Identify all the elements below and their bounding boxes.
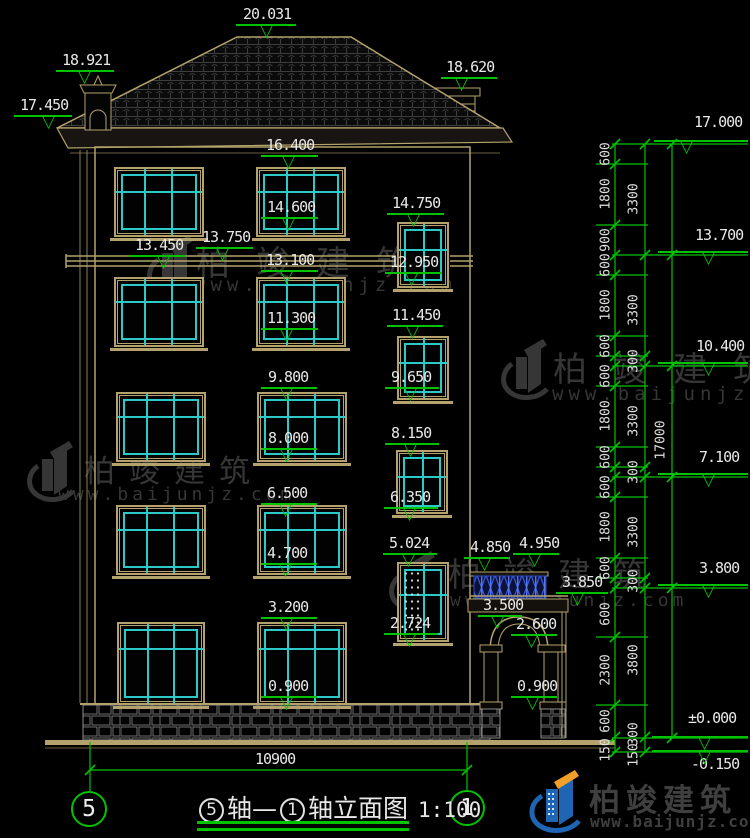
chain-dim-label: 3300	[628, 516, 641, 547]
elevation-triangle-icon: ▽	[280, 386, 293, 403]
level-triangle-icon: ▽	[680, 139, 693, 156]
chain-dim-label: 300	[628, 349, 641, 372]
window-mullion	[146, 394, 148, 460]
chain-dim-label: 17000	[655, 420, 668, 459]
window-transom	[259, 529, 345, 531]
window	[116, 505, 206, 575]
title-axis-a: 5	[199, 798, 224, 823]
chain-dim-label: 1800	[600, 289, 613, 320]
window-sill	[393, 289, 453, 292]
elevation-triangle-icon: ▽	[571, 591, 584, 608]
chain-dim-label: 600	[600, 709, 613, 732]
chain-dim-label: 600	[600, 253, 613, 276]
chain-dim-label: 600	[600, 475, 613, 498]
window-transom	[116, 191, 202, 193]
elevation-triangle-icon: ▽	[282, 154, 295, 171]
elevation-triangle-icon: ▽	[403, 506, 416, 523]
chain-dim-label: 3300	[628, 183, 641, 214]
elevation-triangle-icon: ▽	[404, 386, 417, 403]
elevation-drawing-canvas: 柏竣建筑www.baijunjz.com柏竣建筑www.baijunjz.com…	[0, 0, 750, 838]
level-label: 10.400	[696, 338, 744, 355]
elevation-triangle-icon: ▽	[280, 695, 293, 712]
chain-dim-label: 900	[600, 228, 613, 251]
elevation-triangle-icon: ▽	[478, 556, 491, 573]
elevation-triangle-icon: ▽	[280, 447, 293, 464]
window-sill	[392, 515, 452, 518]
window-sill	[393, 401, 453, 404]
level-label: 17.000	[694, 114, 742, 131]
window-mullion	[144, 169, 146, 235]
elevation-triangle-icon: ▽	[280, 327, 293, 344]
chain-dim-label: 600	[600, 334, 613, 357]
window-glass	[123, 399, 199, 455]
elevation-triangle-icon: ▽	[526, 695, 539, 712]
chain-dim-label: 3300	[628, 405, 641, 436]
level-triangle-icon: ▽	[702, 250, 715, 267]
chain-dim-label: 300	[628, 722, 641, 745]
window	[114, 277, 204, 347]
window-glass	[124, 629, 198, 698]
title-mid: 轴—	[227, 794, 277, 823]
elevation-triangle-icon: ▽	[280, 269, 293, 286]
window-sill	[113, 706, 209, 709]
window-sill	[112, 576, 210, 579]
window-sill	[112, 463, 210, 466]
window-mullion	[144, 279, 146, 345]
chain-dim-label: 600	[600, 602, 613, 625]
elevation-marker-line	[441, 77, 497, 79]
chain-dim-label: 1800	[600, 178, 613, 209]
chain-dim-label: 600	[600, 364, 613, 387]
window-transom	[258, 191, 344, 193]
elevation-label: 18.620	[446, 59, 494, 76]
window-transom	[118, 529, 204, 531]
window-transom	[119, 648, 203, 650]
drawing-title: 5轴—1轴立面图1:100	[196, 789, 481, 825]
title-axis-b: 1	[280, 798, 305, 823]
window-mullion	[173, 507, 175, 573]
elevation-triangle-icon: ▽	[280, 616, 293, 633]
level-label: 3.800	[699, 560, 739, 577]
level-marker-line	[654, 140, 748, 142]
window-sill	[393, 643, 453, 646]
chain-dim-label: 2300	[600, 654, 613, 685]
brand-url: www.baijunjz.com	[590, 812, 750, 831]
window-sill	[252, 348, 350, 351]
elevation-triangle-icon: ▽	[405, 271, 418, 288]
elevation-triangle-icon: ▽	[282, 216, 295, 233]
elevation-triangle-icon: ▽	[157, 254, 170, 271]
window-mullion	[173, 394, 175, 460]
window-sill	[253, 706, 351, 709]
window-mullion	[173, 624, 175, 703]
elevation-triangle-icon: ▽	[279, 562, 292, 579]
overall-dimension: 10900	[255, 751, 295, 768]
window-transom	[258, 301, 344, 303]
chain-dim-label: 600	[600, 445, 613, 468]
elevation-triangle-icon: ▽	[260, 23, 273, 40]
window-glass	[121, 174, 197, 230]
chain-dim-label: 300	[628, 460, 641, 483]
chain-dim-label: 150	[600, 738, 613, 761]
window-transom	[118, 416, 204, 418]
chain-dim-label: 300	[628, 569, 641, 592]
elevation-triangle-icon: ▽	[406, 324, 419, 341]
level-triangle-icon: ▽	[702, 583, 715, 600]
window-glass	[123, 512, 199, 568]
window-sill	[253, 463, 351, 466]
elevation-triangle-icon: ▽	[407, 212, 420, 229]
elevation-triangle-icon: ▽	[78, 69, 91, 86]
drawing-scale: 1:100	[418, 798, 481, 822]
chain-dim-label: 1800	[600, 511, 613, 542]
window-transom	[116, 301, 202, 303]
level-label: ±0.000	[688, 710, 736, 727]
window-mullion	[171, 279, 173, 345]
title-suffix: 轴立面图	[308, 794, 408, 823]
elevation-triangle-icon: ▽	[528, 552, 541, 569]
window-mullion	[146, 507, 148, 573]
window	[117, 622, 205, 705]
chain-dim-label: 150	[628, 743, 641, 766]
title-underline-1	[197, 821, 409, 824]
chain-dim-label: 1800	[600, 400, 613, 431]
brand-logo-icon	[527, 768, 587, 836]
elevation-triangle-icon: ▽	[42, 114, 55, 131]
window	[116, 392, 206, 462]
elevation-triangle-icon: ▽	[491, 614, 504, 631]
chain-dim-label: 600	[600, 556, 613, 579]
level-label: 13.700	[695, 227, 743, 244]
level-triangle-icon: ▽	[702, 361, 715, 378]
window-mullion	[171, 169, 173, 235]
level-triangle-icon: ▽	[698, 749, 711, 766]
elevation-triangle-icon: ▽	[403, 632, 416, 649]
window-sill	[253, 576, 351, 579]
chain-dim-label: 3300	[628, 294, 641, 325]
elevation-triangle-icon: ▽	[455, 76, 468, 93]
window-glass	[121, 284, 197, 340]
elevation-triangle-icon: ▽	[525, 633, 538, 650]
window-sill	[252, 238, 350, 241]
elevation-triangle-icon: ▽	[402, 552, 415, 569]
chain-dim-label: 600	[600, 142, 613, 165]
window-mullion	[314, 624, 316, 703]
window	[257, 392, 347, 462]
window-transom	[259, 416, 345, 418]
title-underline-2	[197, 828, 409, 831]
window-mullion	[314, 394, 316, 460]
level-triangle-icon: ▽	[702, 472, 715, 489]
elevation-triangle-icon: ▽	[279, 502, 292, 519]
window	[114, 167, 204, 237]
elevation-triangle-icon: ▽	[216, 246, 229, 263]
level-label: 7.100	[699, 449, 739, 466]
window-mullion	[147, 624, 149, 703]
axis-bubble-5: 5	[71, 791, 107, 827]
window-transom	[259, 648, 345, 650]
chain-dim-label: 3800	[628, 644, 641, 675]
elevation-triangle-icon: ▽	[404, 442, 417, 459]
window-sill	[110, 348, 208, 351]
